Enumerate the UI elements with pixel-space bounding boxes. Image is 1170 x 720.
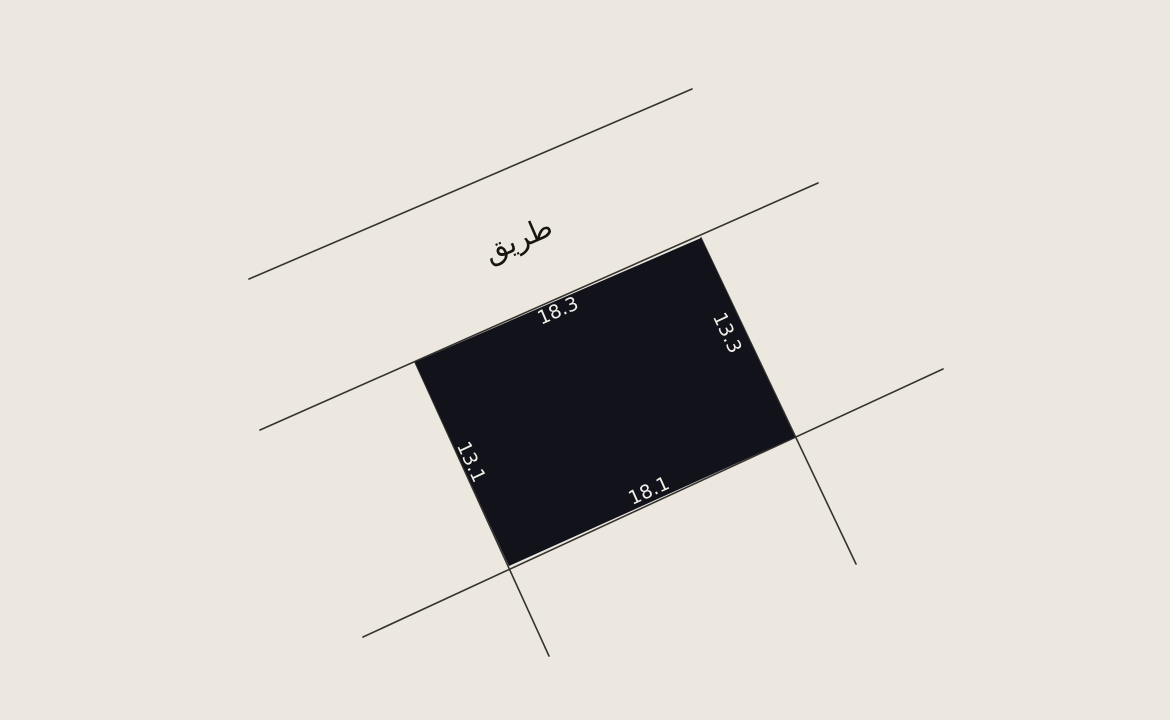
parcel-map-canvas: طريق 18.3 13.3 13.1 18.1 — [0, 0, 1170, 720]
